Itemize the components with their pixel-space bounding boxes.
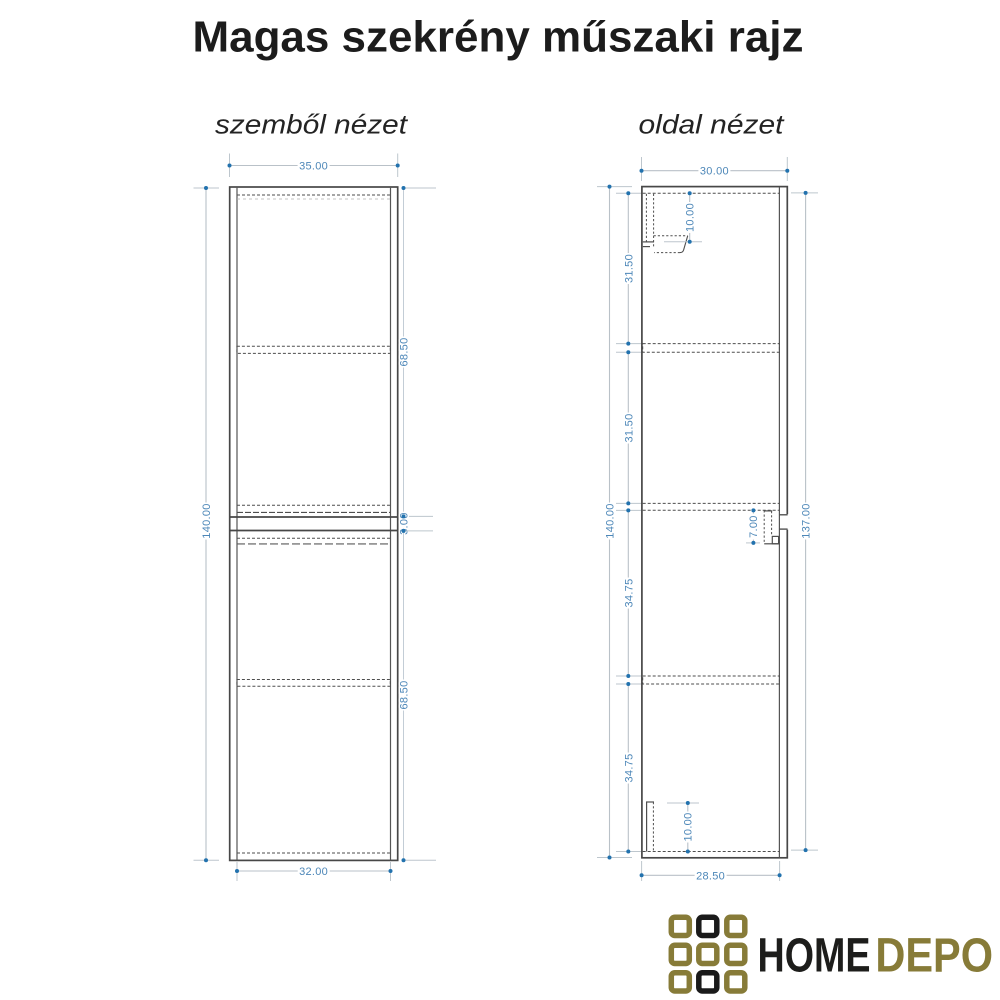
- svg-text:10.00: 10.00: [683, 812, 695, 841]
- svg-text:140.00: 140.00: [201, 503, 213, 538]
- svg-text:31.50: 31.50: [623, 254, 635, 283]
- svg-text:34.75: 34.75: [623, 753, 635, 782]
- svg-text:HOME: HOME: [758, 929, 871, 982]
- svg-text:140.00: 140.00: [605, 503, 617, 538]
- svg-text:10.00: 10.00: [685, 203, 697, 232]
- svg-text:34.75: 34.75: [623, 578, 635, 607]
- svg-text:32.00: 32.00: [299, 866, 328, 878]
- svg-text:35.00: 35.00: [299, 161, 328, 173]
- svg-text:DEPO: DEPO: [875, 928, 993, 983]
- svg-text:30.00: 30.00: [700, 166, 729, 178]
- svg-text:68.50: 68.50: [399, 680, 411, 709]
- svg-text:Magas szekrény műszaki rajz: Magas szekrény műszaki rajz: [193, 13, 804, 62]
- svg-text:szemből nézet: szemből nézet: [215, 110, 409, 140]
- svg-text:68.50: 68.50: [399, 337, 411, 366]
- svg-text:31.50: 31.50: [623, 413, 635, 442]
- svg-text:7.00: 7.00: [748, 515, 760, 538]
- svg-text:28.50: 28.50: [696, 870, 725, 882]
- svg-text:137.00: 137.00: [801, 503, 813, 538]
- svg-text:oldal nézet: oldal nézet: [639, 110, 786, 140]
